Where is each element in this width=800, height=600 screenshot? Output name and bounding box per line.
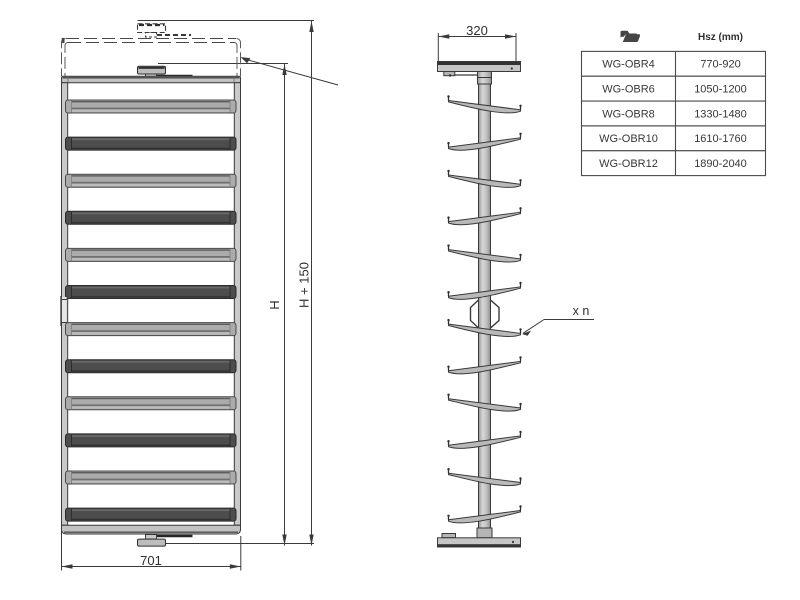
svg-text:1050-1200: 1050-1200 bbox=[694, 84, 747, 96]
svg-text:1610-1760: 1610-1760 bbox=[694, 133, 747, 145]
svg-text:Hsz (mm): Hsz (mm) bbox=[698, 32, 743, 43]
svg-text:H + 150: H + 150 bbox=[297, 262, 312, 308]
svg-text:WG-OBR8: WG-OBR8 bbox=[602, 108, 655, 120]
svg-text:1890-2040: 1890-2040 bbox=[694, 158, 747, 170]
svg-text:770-920: 770-920 bbox=[700, 59, 740, 71]
svg-text:320: 320 bbox=[466, 23, 488, 38]
svg-text:WG-OBR10: WG-OBR10 bbox=[599, 133, 658, 145]
svg-text:WG-OBR6: WG-OBR6 bbox=[602, 84, 655, 96]
svg-text:H: H bbox=[267, 300, 282, 309]
svg-text:1330-1480: 1330-1480 bbox=[694, 108, 747, 120]
svg-text:WG-OBR12: WG-OBR12 bbox=[599, 158, 658, 170]
svg-text:WG-OBR4: WG-OBR4 bbox=[602, 59, 655, 71]
svg-text:701: 701 bbox=[140, 553, 162, 568]
svg-text:x n: x n bbox=[573, 304, 590, 318]
